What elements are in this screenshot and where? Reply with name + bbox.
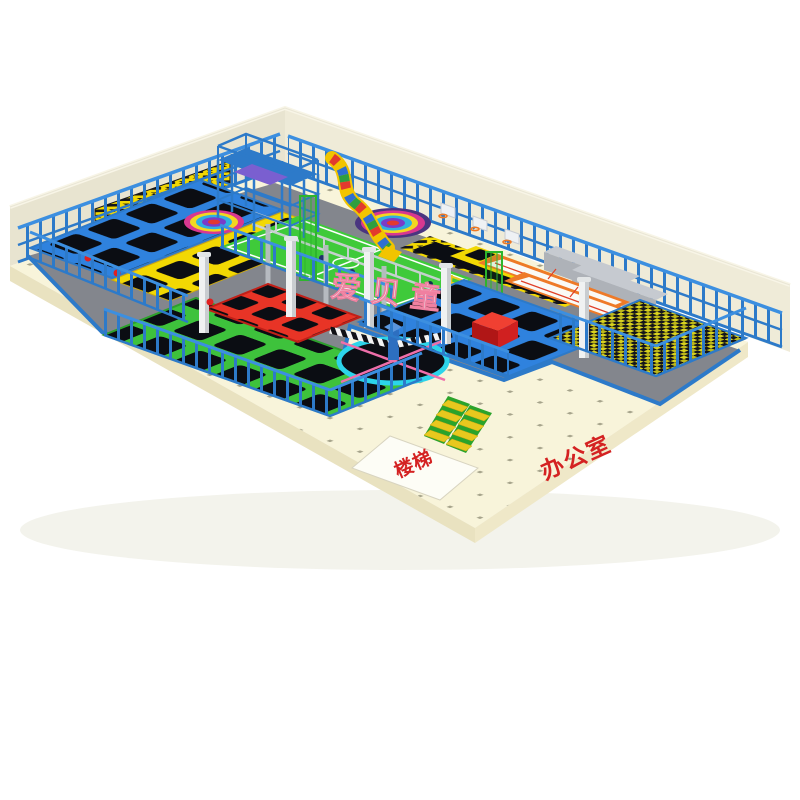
ground-shadow	[20, 490, 780, 570]
park-scene: 楼梯 办公室 爱贝童	[0, 0, 800, 800]
trampoline-park-render: 楼梯 办公室 爱贝童	[0, 0, 800, 800]
